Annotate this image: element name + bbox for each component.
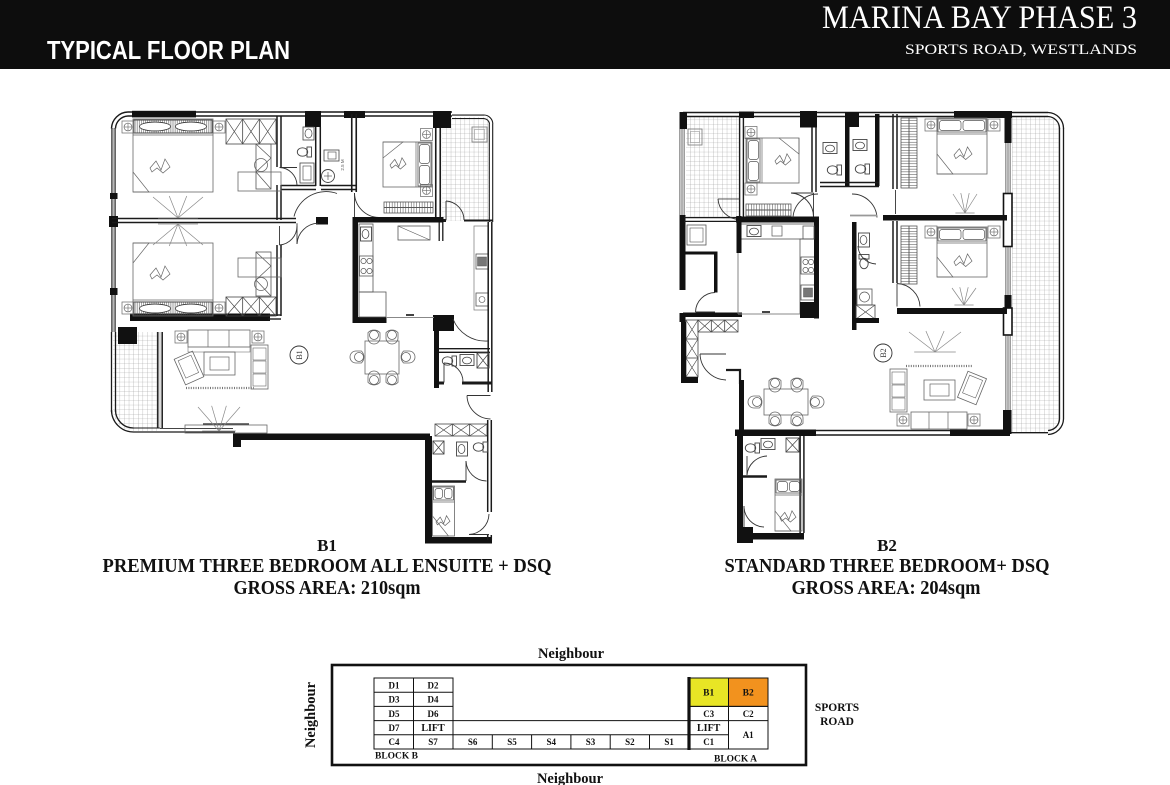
svg-text:LIFT: LIFT [421, 723, 445, 734]
svg-text:B1: B1 [317, 536, 337, 555]
svg-text:BLOCK A: BLOCK A [714, 755, 757, 765]
svg-text:BLOCK B: BLOCK B [375, 752, 419, 762]
svg-text:B1: B1 [703, 688, 714, 698]
svg-text:D1: D1 [389, 680, 400, 690]
svg-text:B1: B1 [295, 350, 304, 359]
svg-text:GROSS AREA: 204sqm: GROSS AREA: 204sqm [792, 578, 981, 599]
svg-text:GROSS AREA: 210sqm: GROSS AREA: 210sqm [234, 578, 421, 599]
svg-text:PREMIUM THREE BEDROOM ALL ENSU: PREMIUM THREE BEDROOM ALL ENSUITE + DSQ [103, 556, 552, 577]
svg-text:S3: S3 [586, 737, 596, 747]
svg-text:B2: B2 [877, 536, 897, 555]
svg-text:2.5 M: 2.5 M [340, 159, 345, 171]
svg-text:B2: B2 [879, 348, 888, 357]
svg-text:D4: D4 [428, 695, 439, 705]
svg-text:D2: D2 [428, 680, 439, 690]
svg-text:D7: D7 [389, 723, 400, 733]
svg-text:S6: S6 [468, 737, 478, 747]
svg-text:A1: A1 [743, 730, 754, 740]
svg-text:S2: S2 [625, 737, 635, 747]
svg-text:D6: D6 [428, 709, 439, 719]
svg-text:SPORTS: SPORTS [815, 702, 859, 714]
svg-text:C2: C2 [743, 709, 754, 719]
svg-text:B2: B2 [743, 688, 754, 698]
svg-text:Neighbour: Neighbour [537, 771, 604, 785]
svg-text:Neighbour: Neighbour [538, 646, 605, 662]
svg-text:D5: D5 [389, 709, 400, 719]
svg-text:S4: S4 [546, 737, 556, 747]
svg-text:STANDARD THREE BEDROOM+ DSQ: STANDARD THREE BEDROOM+ DSQ [725, 556, 1050, 577]
svg-text:SPORTS ROAD, WESTLANDS: SPORTS ROAD, WESTLANDS [905, 42, 1137, 58]
svg-text:ROAD: ROAD [820, 716, 854, 728]
svg-text:C1: C1 [703, 737, 714, 747]
svg-text:S5: S5 [507, 737, 517, 747]
svg-text:S7: S7 [428, 737, 438, 747]
svg-text:MARINA BAY PHASE 3: MARINA BAY PHASE 3 [822, 0, 1137, 36]
svg-text:D3: D3 [389, 695, 400, 705]
svg-text:TYPICAL FLOOR PLAN: TYPICAL FLOOR PLAN [47, 35, 290, 65]
svg-text:C4: C4 [389, 737, 400, 747]
svg-text:C3: C3 [703, 709, 714, 719]
svg-text:Neighbour: Neighbour [303, 681, 319, 748]
svg-text:LIFT: LIFT [697, 723, 721, 734]
svg-text:S1: S1 [664, 737, 674, 747]
